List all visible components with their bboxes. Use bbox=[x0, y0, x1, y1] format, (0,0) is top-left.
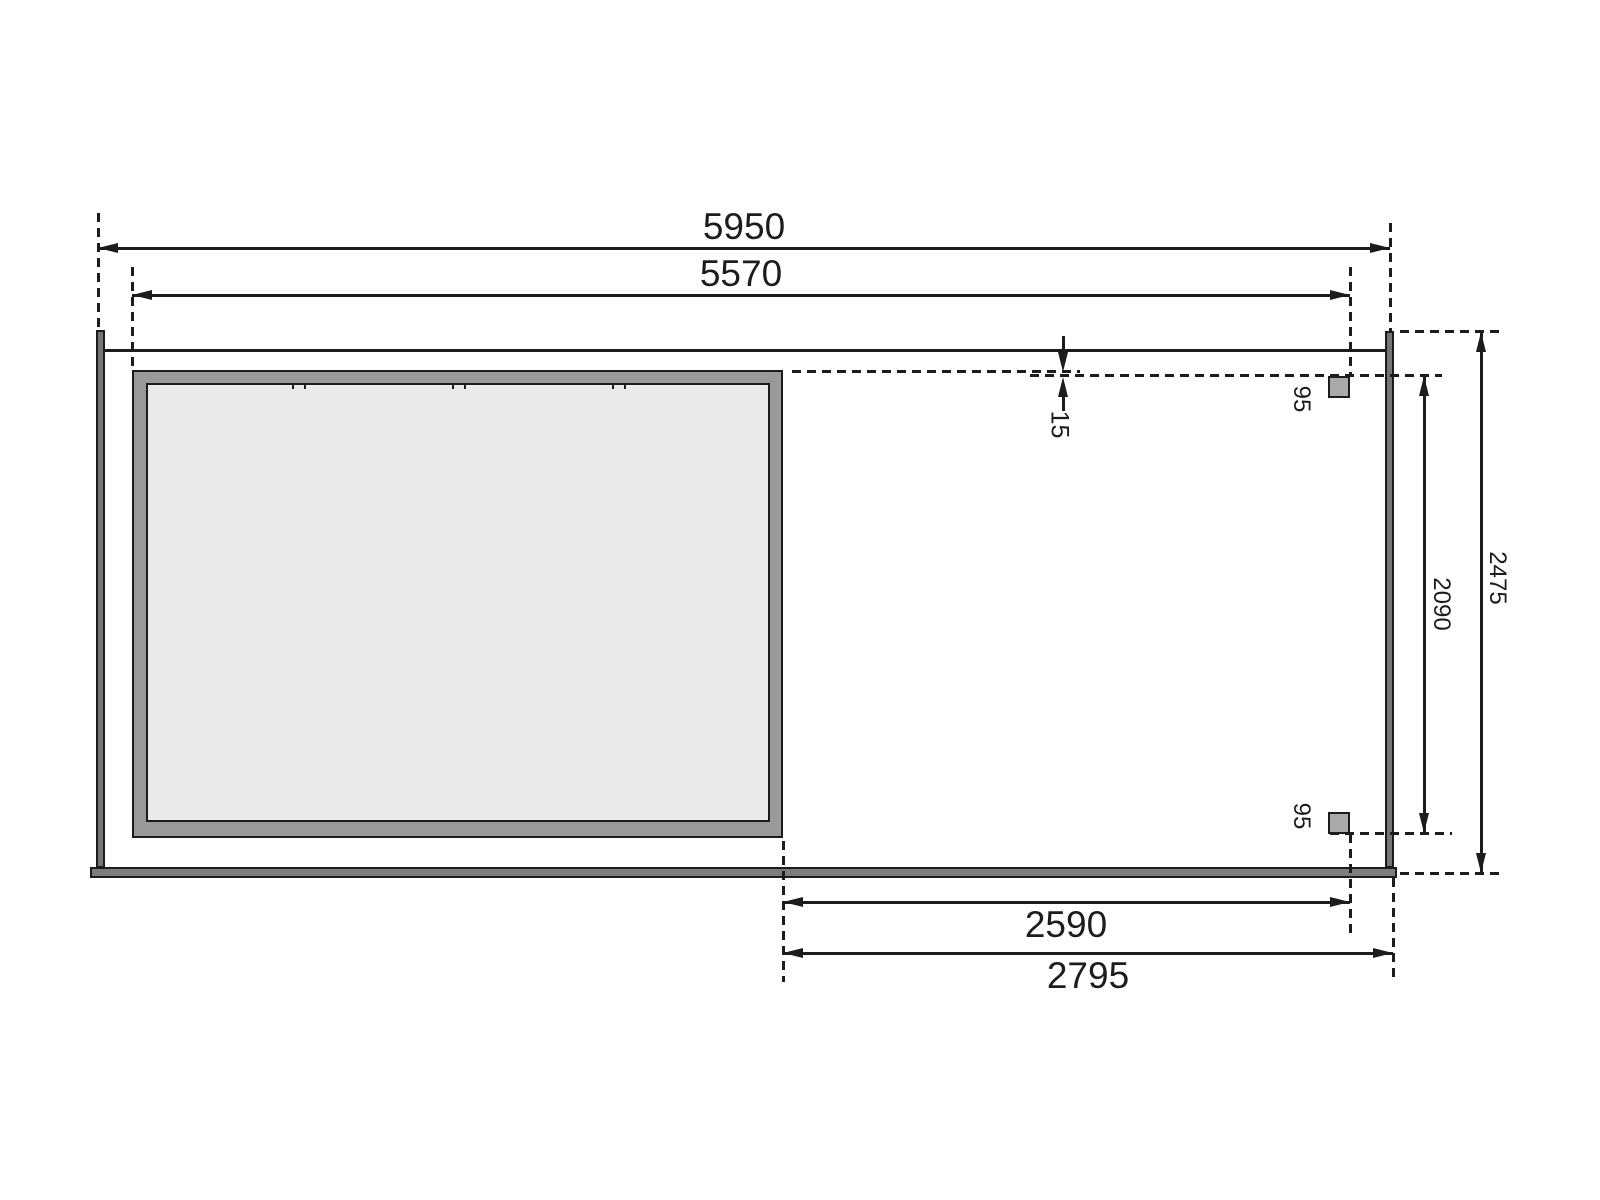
extension-line bbox=[1400, 872, 1503, 875]
wall-joint-tick bbox=[624, 383, 626, 389]
wall-joint-tick bbox=[612, 383, 614, 389]
dim-line-inner-width bbox=[132, 294, 1350, 297]
dim-line-overall-width bbox=[98, 247, 1390, 250]
dim-label-post-clear-depth: 2090 bbox=[1429, 544, 1453, 664]
wall-joint-tick bbox=[452, 383, 454, 389]
support-post-top bbox=[1328, 376, 1350, 398]
arrowhead bbox=[1058, 352, 1068, 372]
shed-floor bbox=[146, 383, 770, 822]
dim-label-overall-width: 5950 bbox=[664, 208, 824, 246]
extension-line bbox=[1389, 223, 1392, 331]
extension-line bbox=[1392, 878, 1395, 983]
arrowhead bbox=[1370, 243, 1390, 253]
arrowhead bbox=[1373, 948, 1393, 958]
dim-line-overall-depth bbox=[1480, 332, 1483, 873]
wall-joint-tick bbox=[292, 383, 294, 389]
arrowhead bbox=[1330, 290, 1350, 300]
arrowhead bbox=[783, 897, 803, 907]
base-beam bbox=[90, 867, 1397, 878]
dim-label-overall-depth: 2475 bbox=[1485, 518, 1509, 638]
extension-line bbox=[1030, 374, 1442, 377]
right-wall bbox=[1385, 331, 1394, 868]
arrowhead bbox=[132, 290, 152, 300]
arrowhead bbox=[1419, 813, 1429, 833]
wall-joint-tick bbox=[464, 383, 466, 389]
arrowhead bbox=[1419, 376, 1429, 396]
dim-tail-roof-offset-top bbox=[1062, 336, 1065, 352]
extension-line bbox=[782, 841, 785, 982]
dim-label-annex-width: 2795 bbox=[1008, 957, 1168, 995]
dim-label-post-size-top: 95 bbox=[1289, 369, 1313, 429]
extension-line bbox=[1330, 832, 1452, 835]
extension-line bbox=[792, 370, 1080, 373]
extension-line bbox=[131, 267, 134, 370]
arrowhead bbox=[783, 948, 803, 958]
front-roof-edge-line bbox=[104, 349, 1385, 352]
extension-line bbox=[97, 213, 100, 330]
dim-label-annex-clear-width: 2590 bbox=[986, 906, 1146, 944]
wall-joint-tick bbox=[304, 383, 306, 389]
support-post-bottom bbox=[1328, 812, 1350, 834]
dim-line-post-clear-depth bbox=[1423, 376, 1426, 833]
extension-line bbox=[1400, 330, 1503, 333]
arrowhead bbox=[1476, 853, 1486, 873]
arrowhead bbox=[1330, 897, 1350, 907]
left-wall bbox=[96, 330, 105, 868]
floor-plan-drawing: 5950 5570 2590 2795 2475 2090 15 95 95 bbox=[0, 0, 1600, 1200]
extension-line bbox=[1349, 267, 1352, 376]
arrowhead bbox=[1476, 332, 1486, 352]
dim-label-inner-width: 5570 bbox=[661, 255, 821, 293]
extension-line bbox=[1349, 834, 1352, 937]
arrowhead bbox=[98, 243, 118, 253]
dim-label-post-size-bottom: 95 bbox=[1289, 786, 1313, 846]
dim-label-roof-offset: 15 bbox=[1047, 395, 1072, 455]
